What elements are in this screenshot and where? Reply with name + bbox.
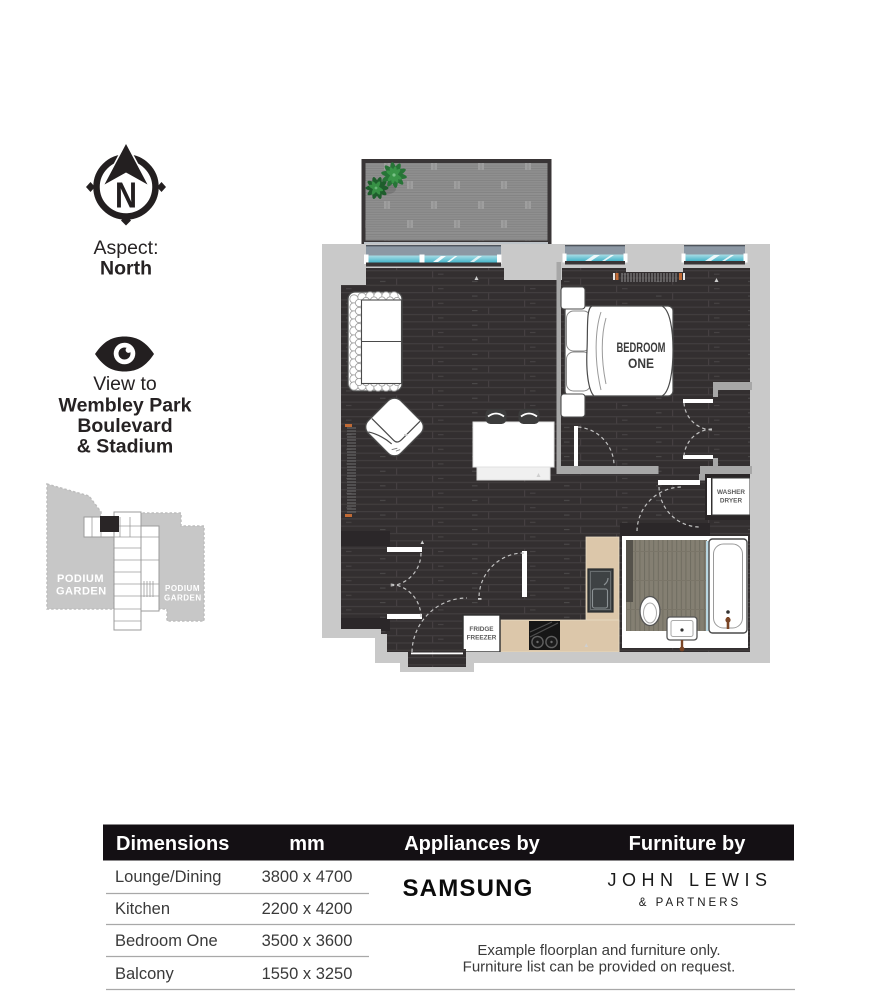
svg-text:View to: View to: [93, 373, 157, 395]
svg-text:1550 x 3250: 1550 x 3250: [262, 965, 353, 983]
svg-text:Furniture by: Furniture by: [629, 833, 747, 855]
svg-text:3500 x 3600: 3500 x 3600: [262, 932, 353, 950]
svg-text:& Stadium: & Stadium: [77, 436, 173, 458]
svg-text:SAMSUNG: SAMSUNG: [402, 875, 533, 902]
svg-text:ONE: ONE: [628, 356, 654, 371]
svg-text:2200 x 4200: 2200 x 4200: [262, 900, 353, 918]
svg-text:Aspect:: Aspect:: [93, 237, 158, 259]
svg-text:BEDROOM: BEDROOM: [617, 340, 666, 355]
svg-text:Appliances by: Appliances by: [404, 833, 540, 855]
svg-text:mm: mm: [289, 833, 325, 855]
svg-text:3800 x 4700: 3800 x 4700: [262, 868, 353, 886]
svg-text:North: North: [100, 258, 152, 280]
svg-text:& PARTNERS: & PARTNERS: [639, 897, 741, 909]
svg-text:Lounge/Dining: Lounge/Dining: [115, 868, 221, 886]
svg-text:Furniture list can be provided: Furniture list can be provided on reques…: [463, 959, 736, 976]
svg-text:FREEZER: FREEZER: [467, 635, 497, 642]
svg-text:WASHER: WASHER: [717, 489, 745, 496]
svg-text:JOHN LEWIS: JOHN LEWIS: [607, 870, 772, 890]
svg-text:Boulevard: Boulevard: [77, 415, 172, 437]
svg-text:FRIDGE: FRIDGE: [469, 626, 494, 633]
svg-text:GARDEN: GARDEN: [164, 594, 202, 603]
svg-text:Kitchen: Kitchen: [115, 900, 170, 918]
svg-text:GARDEN: GARDEN: [56, 586, 107, 598]
svg-text:DRYER: DRYER: [720, 498, 743, 505]
svg-text:Example floorplan and furnitur: Example floorplan and furniture only.: [477, 942, 720, 959]
svg-text:PODIUM: PODIUM: [165, 584, 200, 593]
svg-text:PODIUM: PODIUM: [57, 573, 104, 585]
svg-text:N: N: [115, 175, 137, 216]
svg-text:Dimensions: Dimensions: [116, 833, 229, 855]
svg-text:Bedroom One: Bedroom One: [115, 932, 218, 950]
svg-text:Balcony: Balcony: [115, 965, 174, 983]
svg-text:Wembley Park: Wembley Park: [59, 395, 192, 417]
